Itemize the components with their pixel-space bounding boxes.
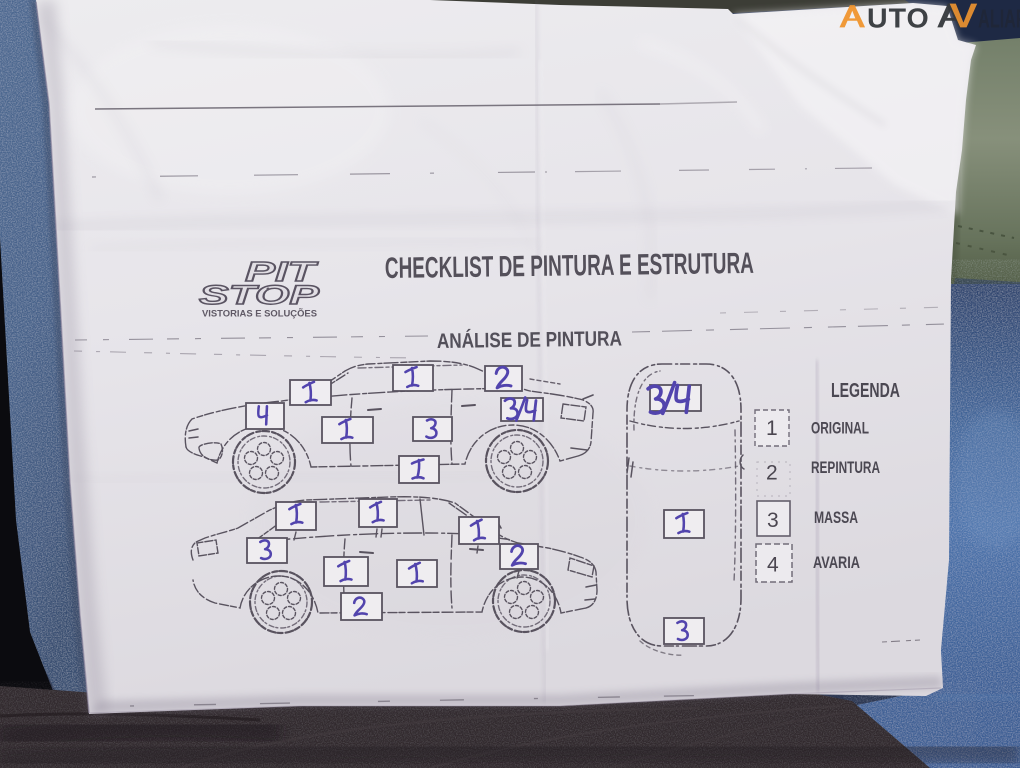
svg-text:CHECKLIST DE PINTURA E ESTRUTU: CHECKLIST DE PINTURA E ESTRUTURA <box>385 247 754 285</box>
svg-text:REPINTURA: REPINTURA <box>811 458 880 477</box>
svg-text:2: 2 <box>766 462 778 485</box>
svg-text:3: 3 <box>767 509 779 532</box>
svg-text:ALIAR: ALIAR <box>978 5 1020 33</box>
svg-text:UTO: UTO <box>867 2 930 33</box>
svg-text:ORIGINAL: ORIGINAL <box>811 419 869 438</box>
svg-text:AVARIA: AVARIA <box>813 553 860 572</box>
svg-text:LEGENDA: LEGENDA <box>831 380 900 402</box>
svg-text:1: 1 <box>766 417 778 440</box>
svg-text:VISTORIAS E SOLUÇÕES: VISTORIAS E SOLUÇÕES <box>202 309 317 319</box>
svg-text:ANÁLISE DE PINTURA: ANÁLISE DE PINTURA <box>437 327 622 353</box>
svg-text:4: 4 <box>767 554 779 577</box>
svg-text:MASSA: MASSA <box>814 508 858 527</box>
svg-text:STOP: STOP <box>199 280 321 310</box>
